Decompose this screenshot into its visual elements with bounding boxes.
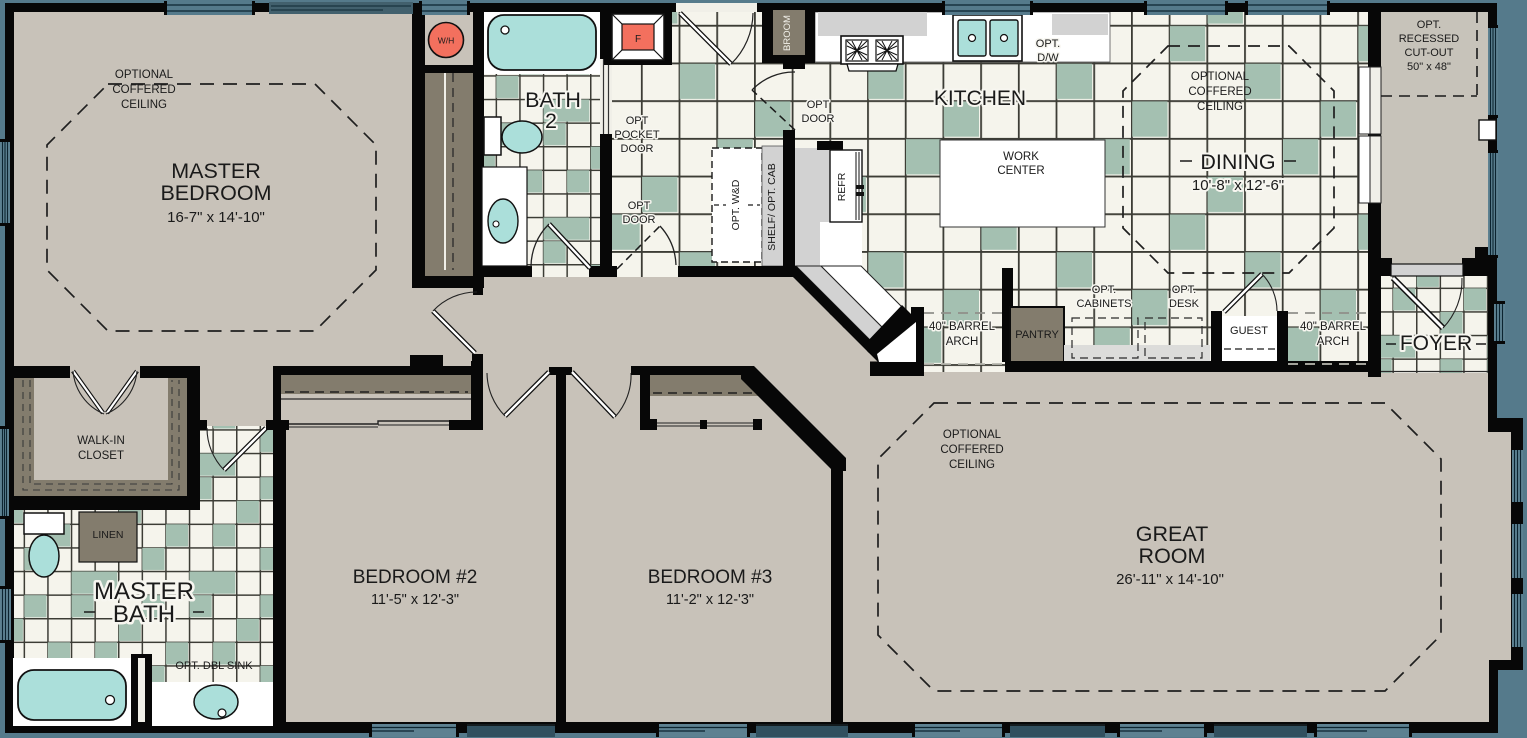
svg-text:CEILING: CEILING bbox=[1197, 101, 1243, 113]
svg-text:COFFERED: COFFERED bbox=[1188, 86, 1251, 98]
svg-text:COFFERED: COFFERED bbox=[940, 444, 1003, 456]
svg-text:26'-11" x 14'-10": 26'-11" x 14'-10" bbox=[1116, 571, 1224, 588]
svg-text:COFFERED: COFFERED bbox=[112, 84, 175, 96]
svg-text:OPT: OPT bbox=[626, 115, 649, 127]
svg-text:LINEN: LINEN bbox=[93, 529, 124, 541]
svg-text:WALK-IN: WALK-IN bbox=[77, 435, 125, 447]
svg-text:CABINETS: CABINETS bbox=[1076, 298, 1131, 310]
svg-text:KITCHEN: KITCHEN bbox=[934, 87, 1026, 110]
svg-text:ARCH: ARCH bbox=[946, 336, 979, 348]
svg-text:OPT.: OPT. bbox=[1417, 19, 1441, 31]
svg-text:40" BARREL: 40" BARREL bbox=[1300, 321, 1367, 333]
svg-text:DESK: DESK bbox=[1169, 298, 1200, 310]
svg-text:WORK: WORK bbox=[1003, 151, 1039, 163]
svg-text:BEDROOM: BEDROOM bbox=[160, 181, 271, 205]
svg-text:SHELF/ OPT. CAB: SHELF/ OPT. CAB bbox=[766, 163, 778, 251]
svg-text:OPTIONAL: OPTIONAL bbox=[1191, 71, 1250, 83]
svg-text:CUT-OUT: CUT-OUT bbox=[1405, 47, 1454, 59]
svg-text:CEILING: CEILING bbox=[121, 99, 167, 111]
svg-text:11'-5" x 12'-3": 11'-5" x 12'-3" bbox=[371, 592, 459, 608]
svg-text:POCKET: POCKET bbox=[614, 129, 660, 141]
svg-text:OPT.: OPT. bbox=[1172, 284, 1196, 296]
svg-text:RECESSED: RECESSED bbox=[1399, 33, 1460, 45]
svg-text:11'-2" x 12-'3": 11'-2" x 12-'3" bbox=[666, 592, 754, 608]
svg-text:GREAT: GREAT bbox=[1136, 522, 1208, 546]
svg-text:OPT. W&D: OPT. W&D bbox=[730, 179, 742, 230]
svg-text:OPT: OPT bbox=[628, 200, 651, 212]
svg-text:OPT: OPT bbox=[807, 99, 830, 111]
svg-text:50" x 48": 50" x 48" bbox=[1407, 61, 1451, 73]
svg-text:FOYER: FOYER bbox=[1400, 332, 1472, 355]
svg-text:CEILING: CEILING bbox=[949, 459, 995, 471]
svg-text:PANTRY: PANTRY bbox=[1015, 329, 1059, 341]
svg-text:40" BARREL: 40" BARREL bbox=[929, 321, 996, 333]
svg-text:BATH: BATH bbox=[113, 601, 175, 628]
svg-text:BEDROOM #3: BEDROOM #3 bbox=[648, 567, 773, 588]
svg-text:DOOR: DOOR bbox=[621, 143, 654, 155]
svg-text:ROOM: ROOM bbox=[1139, 544, 1206, 568]
svg-text:2: 2 bbox=[545, 109, 557, 133]
svg-text:CENTER: CENTER bbox=[997, 165, 1044, 177]
svg-text:REFR: REFR bbox=[836, 172, 848, 201]
svg-text:W/H: W/H bbox=[438, 36, 455, 46]
svg-text:DOOR: DOOR bbox=[623, 214, 656, 226]
svg-text:F: F bbox=[635, 34, 641, 45]
svg-text:CLOSET: CLOSET bbox=[78, 450, 124, 462]
svg-text:MASTER: MASTER bbox=[171, 159, 261, 183]
svg-text:GUEST: GUEST bbox=[1230, 325, 1268, 337]
svg-text:OPTIONAL: OPTIONAL bbox=[943, 429, 1002, 441]
svg-text:OPTIONAL: OPTIONAL bbox=[115, 69, 174, 81]
svg-text:OPT.: OPT. bbox=[1036, 38, 1060, 50]
svg-text:DINING: DINING bbox=[1200, 150, 1275, 174]
svg-text:BEDROOM #2: BEDROOM #2 bbox=[353, 567, 478, 588]
svg-text:10'-8" x 12'-6": 10'-8" x 12'-6" bbox=[1192, 177, 1284, 194]
svg-text:ARCH: ARCH bbox=[1317, 336, 1350, 348]
svg-text:OPT.: OPT. bbox=[1092, 284, 1116, 296]
svg-text:OPT. DBL SINK: OPT. DBL SINK bbox=[175, 660, 253, 672]
svg-text:16-7" x 14'-10": 16-7" x 14'-10" bbox=[167, 209, 265, 226]
svg-text:DOOR: DOOR bbox=[802, 113, 835, 125]
svg-text:D/W: D/W bbox=[1037, 52, 1059, 64]
svg-text:BROOM: BROOM bbox=[782, 15, 793, 51]
